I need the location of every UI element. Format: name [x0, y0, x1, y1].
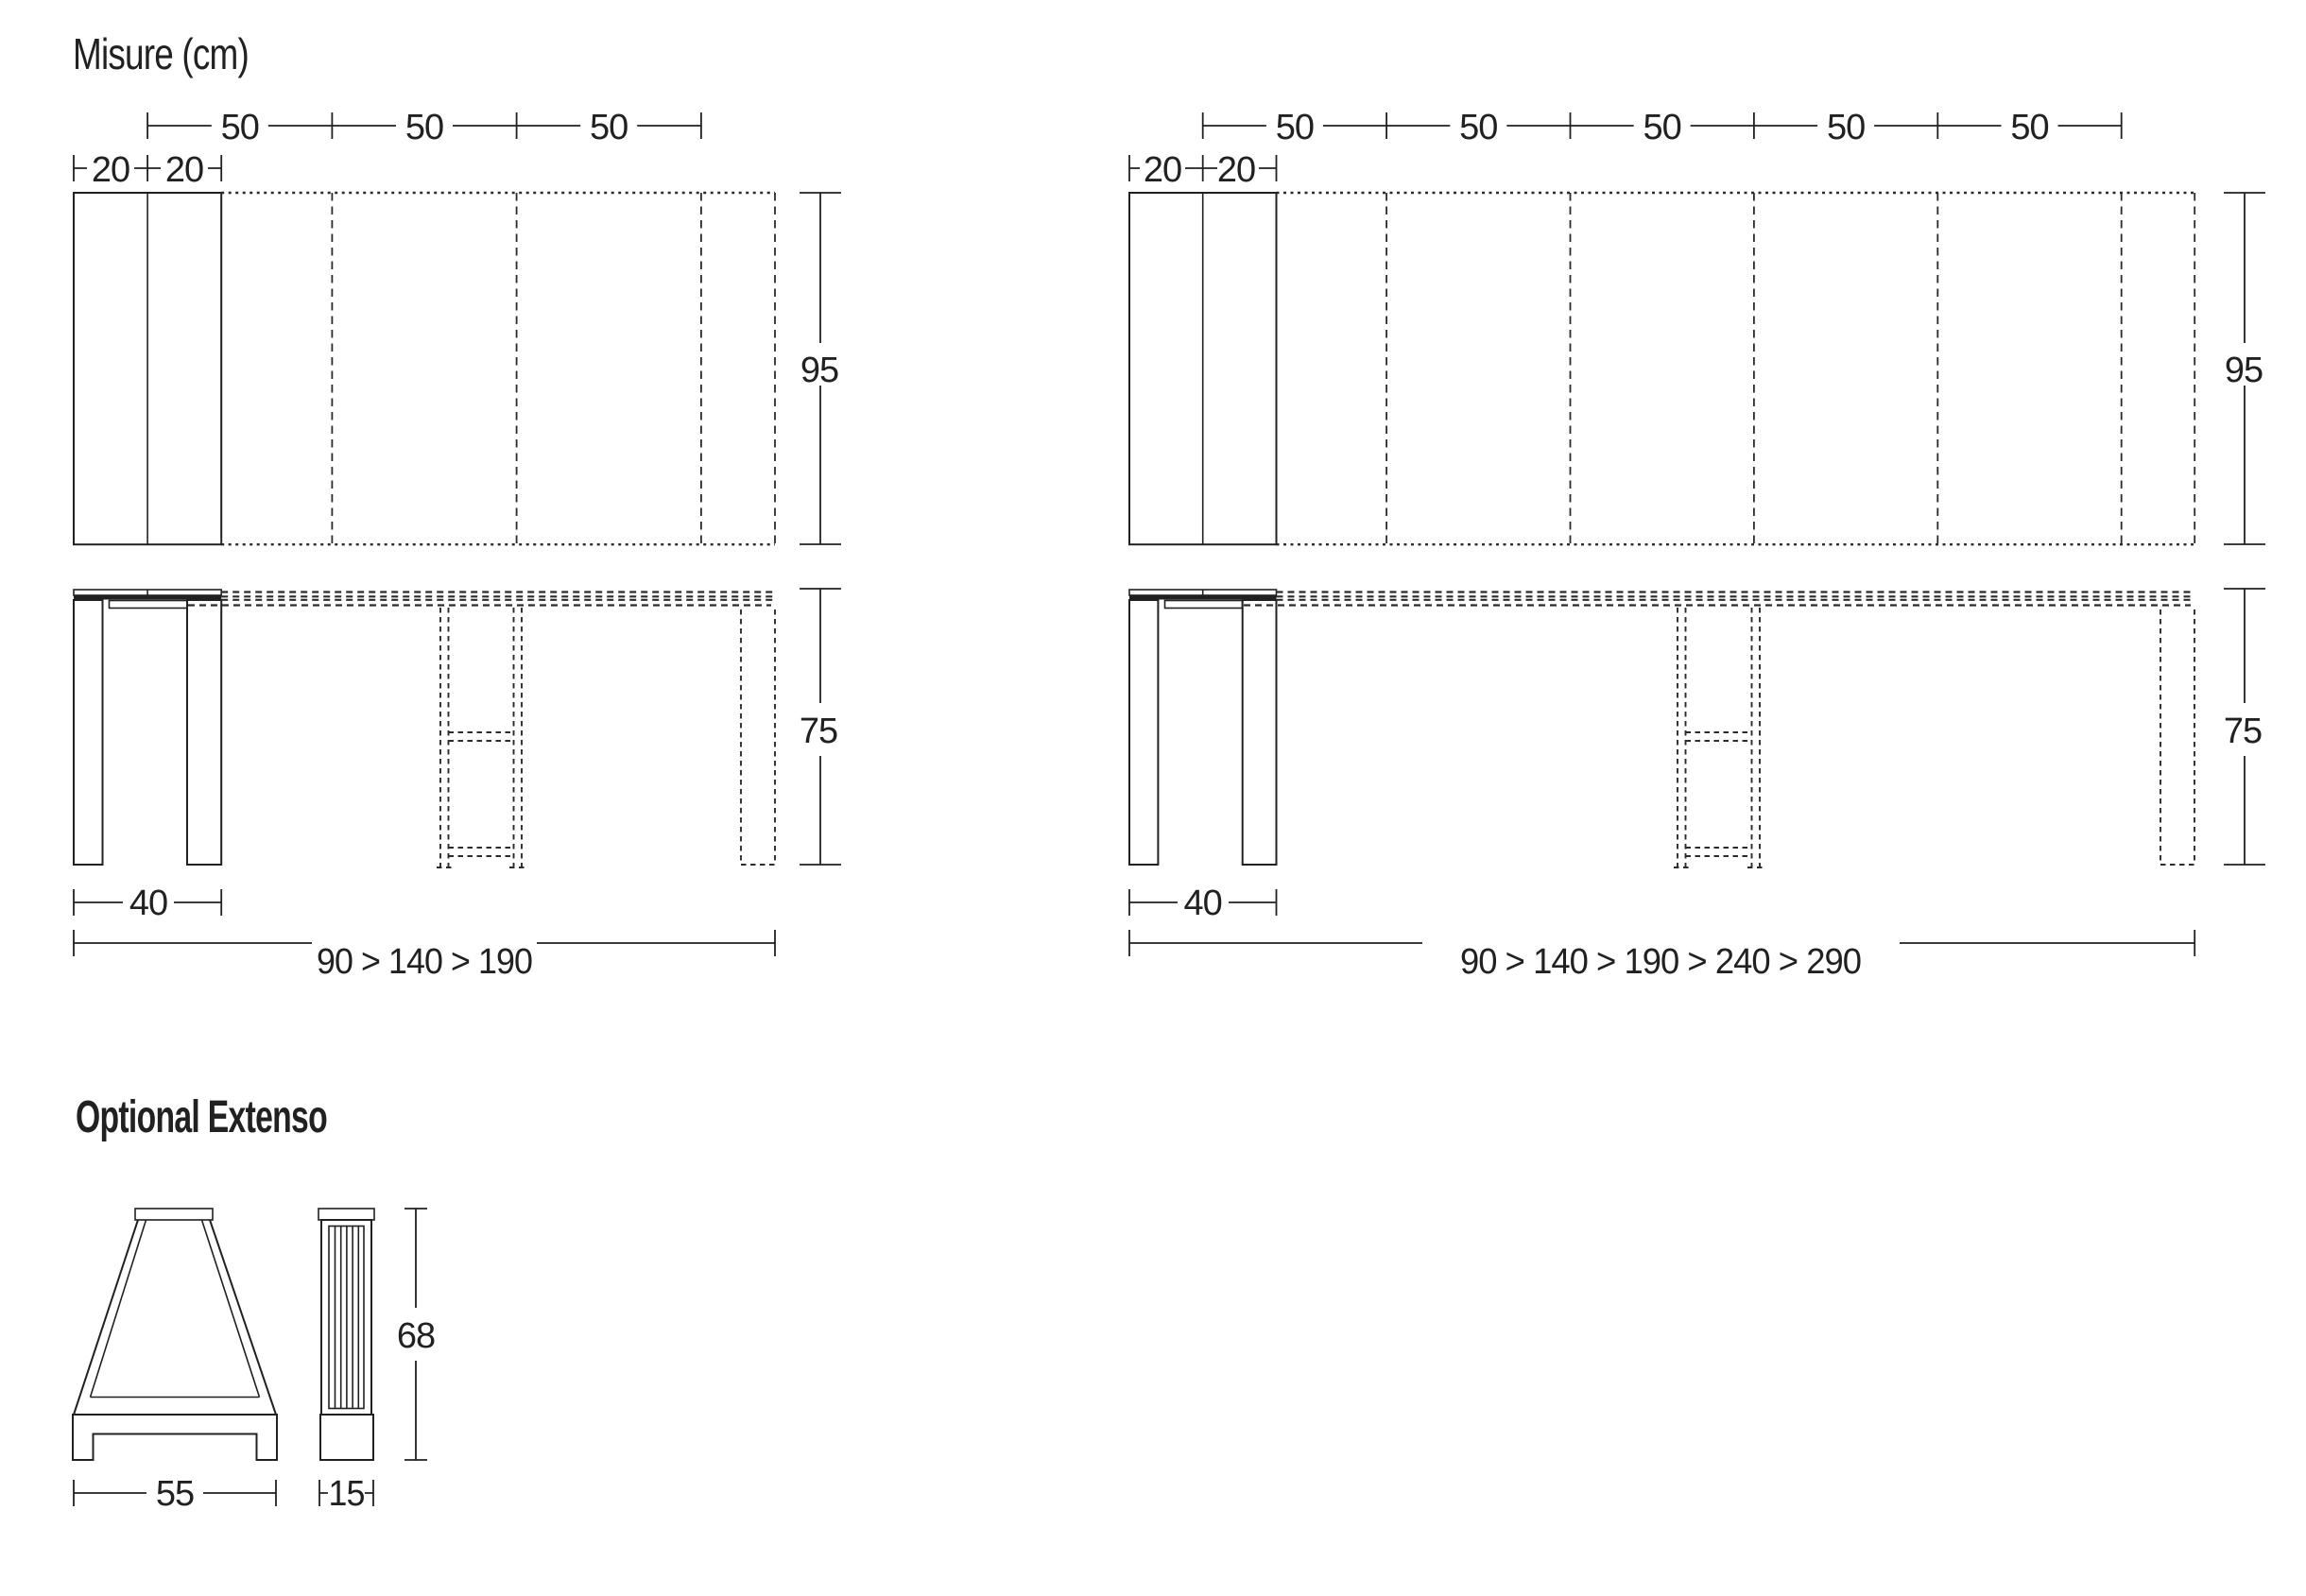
panel-dim-label: 20 [92, 150, 129, 190]
extenso-height-dim-line: 68 [397, 1209, 435, 1460]
table-leg [1129, 600, 1158, 865]
optional-trestle-dashed [1674, 608, 1764, 867]
table-leg [74, 600, 103, 865]
extension-edge-dotted [221, 193, 775, 544]
right-panel-dim-line: 20 20 [1129, 150, 1277, 190]
leaf-dim-label: 50 [2010, 108, 2048, 147]
panel-dim-label: 20 [165, 150, 203, 190]
left-diagram: 50 50 50 20 20 95 [74, 108, 841, 982]
slide-bracket [1165, 601, 1243, 609]
trestle-rails [449, 732, 514, 856]
dimension-drawing: Misure (cm) 50 50 50 20 20 [0, 0, 2306, 1596]
right-diagram: 50 50 50 50 50 20 20 95 [1129, 108, 2265, 982]
left-panel-dim-line: 20 20 [74, 150, 221, 190]
optional-trestle-dashed [437, 608, 525, 867]
extended-top-dashed [1277, 592, 2195, 600]
extenso-front-view [73, 1209, 277, 1460]
leaf-dim-label: 50 [1459, 108, 1497, 147]
leaf-dim-label: 50 [1643, 108, 1681, 147]
extenso-thickness-dim-line: 15 [319, 1474, 373, 1514]
extenso-title: Optional Extenso [76, 1092, 327, 1142]
trestle-base [73, 1415, 277, 1460]
left-depth-dim-line: 95 [800, 193, 841, 544]
table-leg [187, 600, 221, 865]
right-depth-dim-line: 95 [2224, 193, 2265, 544]
left-length-dim-line: 90 > 140 > 190 [74, 930, 775, 982]
trestle-uprights [440, 608, 522, 867]
panel-dim-label: 20 [1144, 150, 1181, 190]
leaf-divider-lines [1386, 193, 2122, 544]
right-front-view [1129, 590, 2194, 867]
trestle-side-slats [336, 1227, 359, 1409]
left-front-view [74, 590, 775, 867]
trestle-rails [1686, 732, 1752, 856]
right-top-view [1129, 193, 2194, 544]
leaf-dim-label: 50 [1276, 108, 1314, 147]
trestle-inner-slants [91, 1220, 260, 1398]
depth-dim-label: 95 [2225, 351, 2263, 390]
right-base-dim-line: 40 [1129, 884, 1277, 923]
leaf-dim-label: 50 [405, 108, 443, 147]
page-title: Misure (cm) [73, 29, 249, 78]
right-height-dim-line: 75 [2224, 589, 2265, 865]
left-height-dim-line: 75 [800, 589, 841, 865]
trestle-uprights [1678, 608, 1760, 867]
trestle-width-label: 55 [156, 1474, 194, 1514]
slide-bracket [110, 601, 188, 609]
trestle-top-cap [135, 1209, 213, 1220]
tabletop-lower-band [1129, 596, 1277, 600]
trestle-thickness-label: 15 [329, 1474, 365, 1514]
depth-dim-label: 95 [800, 351, 838, 390]
length-range-label: 90 > 140 > 190 [317, 942, 532, 982]
extended-top-dashed [221, 592, 775, 600]
tabletop-lower-band [74, 596, 221, 600]
leaf-dim-label: 50 [221, 108, 259, 147]
extension-edge-dotted [1277, 193, 2195, 544]
base-dim-label: 40 [129, 884, 167, 923]
left-leaf-dim-line: 50 50 50 [147, 108, 701, 147]
trestle-side-cap [318, 1209, 374, 1220]
far-leg-dashed [741, 609, 775, 865]
dimension-sheet: Misure (cm) 50 50 50 20 20 [0, 0, 2306, 1596]
right-leaf-dim-line: 50 50 50 50 50 [1203, 108, 2122, 147]
extenso-width-dim-line: 55 [74, 1474, 276, 1514]
leaf-dim-label: 50 [1827, 108, 1865, 147]
left-top-view [74, 193, 775, 544]
length-range-label: 90 > 140 > 190 > 240 > 290 [1460, 942, 1861, 982]
height-dim-label: 75 [2224, 712, 2262, 751]
left-base-dim-line: 40 [74, 884, 221, 923]
base-dim-label: 40 [1184, 884, 1222, 923]
table-leg [1243, 600, 1277, 865]
far-leg-outline [741, 609, 775, 865]
leaf-dim-label: 50 [590, 108, 628, 147]
trestle-outer-slants [74, 1220, 276, 1415]
extenso-side-view [318, 1209, 374, 1460]
far-leg-dashed [2160, 609, 2194, 865]
extenso-section: Optional Extenso 68 55 [73, 1092, 435, 1514]
far-leg-outline [2160, 609, 2194, 865]
right-length-dim-line: 90 > 140 > 190 > 240 > 290 [1129, 930, 2194, 982]
leaf-divider-lines [332, 193, 701, 544]
trestle-side-foot [320, 1415, 373, 1460]
panel-dim-label: 20 [1217, 150, 1255, 190]
height-dim-label: 75 [800, 712, 837, 751]
trestle-height-label: 68 [397, 1316, 435, 1356]
